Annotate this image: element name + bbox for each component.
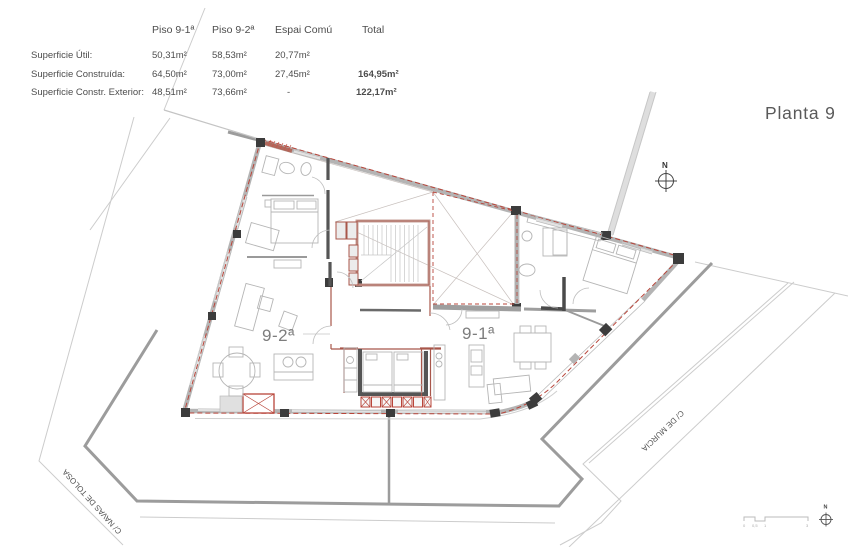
svg-text:122,17m²: 122,17m²: [356, 87, 397, 98]
svg-text:0: 0: [743, 523, 746, 528]
svg-text:27,45m²: 27,45m²: [275, 69, 310, 80]
svg-text:73,00m²: 73,00m²: [212, 69, 247, 80]
svg-text:Superficie Útil:: Superficie Útil:: [31, 50, 92, 61]
svg-text:0,5: 0,5: [752, 523, 758, 528]
svg-text:N: N: [824, 505, 828, 511]
svg-text:48,51m²: 48,51m²: [152, 87, 187, 98]
svg-text:58,53m²: 58,53m²: [212, 50, 247, 61]
svg-text:C/ DE MURCIA: C/ DE MURCIA: [639, 408, 685, 453]
svg-text:Superficie Construída:: Superficie Construída:: [31, 69, 125, 80]
svg-text:Espai Comú: Espai Comú: [275, 24, 332, 36]
svg-text:Planta 9: Planta 9: [765, 103, 836, 123]
svg-text:Piso 9-1ª: Piso 9-1ª: [152, 24, 195, 36]
svg-text:9-1ª: 9-1ª: [462, 324, 495, 343]
svg-text:9-2ª: 9-2ª: [262, 326, 295, 345]
svg-text:164,95m²: 164,95m²: [358, 69, 399, 80]
svg-text:64,50m²: 64,50m²: [152, 69, 187, 80]
svg-text:73,66m²: 73,66m²: [212, 87, 247, 98]
svg-text:-: -: [287, 87, 290, 98]
svg-text:Superficie Constr. Exterior:: Superficie Constr. Exterior:: [31, 87, 144, 98]
svg-text:50,31m²: 50,31m²: [152, 50, 187, 61]
svg-text:N: N: [662, 161, 668, 170]
svg-text:1: 1: [764, 523, 767, 528]
svg-text:20,77m²: 20,77m²: [275, 50, 310, 61]
svg-text:Total: Total: [362, 24, 384, 36]
svg-text:Piso 9-2ª: Piso 9-2ª: [212, 24, 255, 36]
svg-text:3: 3: [806, 523, 809, 528]
